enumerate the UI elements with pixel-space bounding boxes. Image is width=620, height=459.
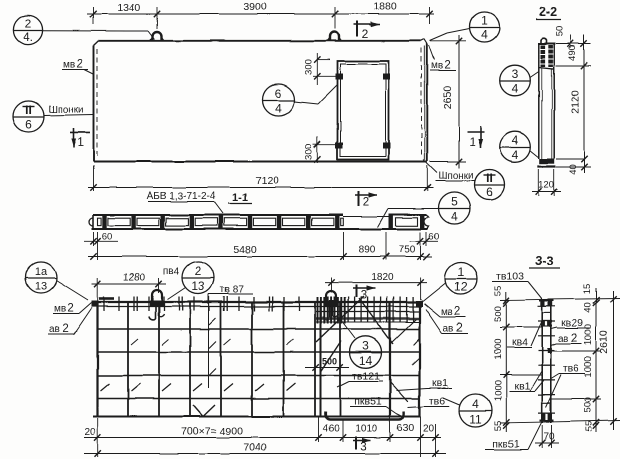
svg-text:1: 1	[469, 135, 476, 149]
svg-text:4: 4	[512, 134, 519, 148]
svg-text:60: 60	[102, 232, 113, 243]
svg-text:3-3: 3-3	[535, 254, 553, 268]
svg-text:40: 40	[568, 164, 579, 175]
svg-text:кв29: кв29	[561, 317, 583, 329]
svg-text:4: 4	[512, 148, 519, 162]
svg-text:Шпонки: Шпонки	[49, 105, 84, 116]
svg-text:6: 6	[486, 185, 493, 199]
svg-text:55: 55	[493, 421, 504, 432]
svg-text:5: 5	[451, 195, 458, 209]
svg-text:Шпонки: Шпонки	[439, 171, 474, 182]
svg-text:750: 750	[399, 245, 416, 256]
svg-text:1010: 1010	[355, 424, 378, 435]
svg-text:4.: 4.	[23, 30, 33, 44]
svg-text:1: 1	[458, 265, 465, 279]
svg-text:мв: мв	[63, 60, 75, 71]
svg-text:70: 70	[543, 432, 555, 443]
svg-text:7040: 7040	[243, 442, 267, 454]
svg-text:3900: 3900	[243, 1, 267, 13]
svg-text:3: 3	[361, 290, 367, 302]
svg-text:1: 1	[481, 14, 488, 28]
svg-text:1-1: 1-1	[232, 192, 248, 204]
svg-text:2-2: 2-2	[539, 5, 557, 19]
svg-text:2: 2	[571, 333, 577, 345]
svg-text:пв4: пв4	[163, 267, 180, 278]
svg-text:6: 6	[25, 118, 32, 132]
svg-text:1280: 1280	[123, 273, 146, 284]
svg-text:11: 11	[469, 413, 482, 427]
svg-text:13: 13	[191, 279, 205, 293]
svg-text:1340: 1340	[117, 2, 141, 14]
svg-text:4: 4	[472, 397, 479, 411]
svg-text:3: 3	[512, 67, 519, 81]
svg-text:6: 6	[275, 87, 282, 101]
svg-text:II: II	[25, 103, 32, 117]
svg-text:55: 55	[584, 421, 595, 432]
svg-text:ав: ав	[558, 334, 569, 345]
svg-text:1000: 1000	[583, 356, 594, 377]
svg-text:2: 2	[363, 197, 369, 209]
svg-text:мв: мв	[441, 307, 453, 318]
svg-text:4: 4	[275, 102, 282, 116]
svg-text:4: 4	[512, 81, 519, 95]
svg-text:7120: 7120	[255, 175, 279, 187]
svg-text:300: 300	[304, 144, 315, 160]
svg-text:1000: 1000	[493, 380, 504, 401]
svg-text:3: 3	[360, 442, 366, 454]
svg-text:2610: 2610	[598, 330, 610, 354]
svg-text:4: 4	[451, 210, 458, 224]
svg-text:500: 500	[493, 306, 504, 322]
svg-text:тв103: тв103	[496, 271, 524, 283]
svg-text:ав: ав	[443, 324, 454, 335]
svg-text:15: 15	[582, 284, 593, 295]
svg-text:II: II	[486, 171, 493, 185]
svg-text:2: 2	[444, 60, 450, 72]
svg-text:2650: 2650	[442, 86, 454, 110]
svg-text:кв4: кв4	[512, 337, 528, 349]
svg-text:40: 40	[583, 302, 594, 313]
svg-text:1000: 1000	[583, 324, 594, 345]
svg-text:300: 300	[304, 59, 315, 75]
svg-text:890: 890	[359, 245, 376, 256]
svg-text:мв: мв	[54, 304, 66, 315]
svg-text:20: 20	[423, 424, 435, 435]
svg-text:1880: 1880	[373, 1, 397, 13]
svg-text:2: 2	[76, 59, 82, 71]
svg-text:тв6: тв6	[563, 363, 579, 375]
svg-text:2: 2	[456, 323, 462, 335]
svg-text:3: 3	[362, 339, 369, 353]
svg-text:кв1: кв1	[514, 381, 530, 393]
svg-text:1000: 1000	[493, 338, 504, 359]
svg-text:2: 2	[362, 27, 369, 41]
svg-text:кв1: кв1	[432, 378, 448, 390]
svg-text:1: 1	[77, 135, 84, 149]
svg-text:ав: ав	[49, 324, 60, 335]
svg-text:2: 2	[67, 303, 73, 315]
svg-text:2: 2	[62, 323, 68, 335]
svg-text:2: 2	[195, 264, 202, 278]
svg-text:14: 14	[359, 354, 373, 368]
svg-text:50: 50	[555, 26, 566, 37]
svg-text:5480: 5480	[233, 244, 257, 256]
svg-text:2: 2	[25, 17, 32, 31]
svg-text:2120: 2120	[570, 90, 582, 114]
svg-text:мв: мв	[431, 61, 443, 72]
svg-text:пкв51: пкв51	[354, 396, 382, 408]
svg-text:120: 120	[539, 180, 555, 191]
svg-text:2: 2	[454, 306, 460, 318]
svg-text:60: 60	[429, 232, 440, 243]
svg-text:пкв51: пкв51	[492, 438, 520, 450]
svg-text:460: 460	[323, 424, 340, 435]
svg-text:500: 500	[322, 357, 337, 367]
svg-text:12: 12	[454, 280, 468, 294]
svg-text:1820: 1820	[371, 272, 394, 283]
svg-text:1а: 1а	[35, 266, 48, 278]
svg-text:4: 4	[481, 28, 488, 42]
svg-text:55: 55	[493, 286, 504, 297]
svg-text:тв6: тв6	[429, 396, 445, 408]
svg-text:490: 490	[568, 45, 579, 61]
svg-text:тв121: тв121	[352, 371, 380, 383]
svg-text:20: 20	[84, 427, 96, 438]
svg-text:13: 13	[35, 281, 47, 293]
svg-text:АБВ 1,3-71-2-4: АБВ 1,3-71-2-4	[147, 191, 216, 202]
svg-text:630: 630	[397, 422, 415, 434]
svg-text:700×7= 4900: 700×7= 4900	[181, 426, 243, 438]
